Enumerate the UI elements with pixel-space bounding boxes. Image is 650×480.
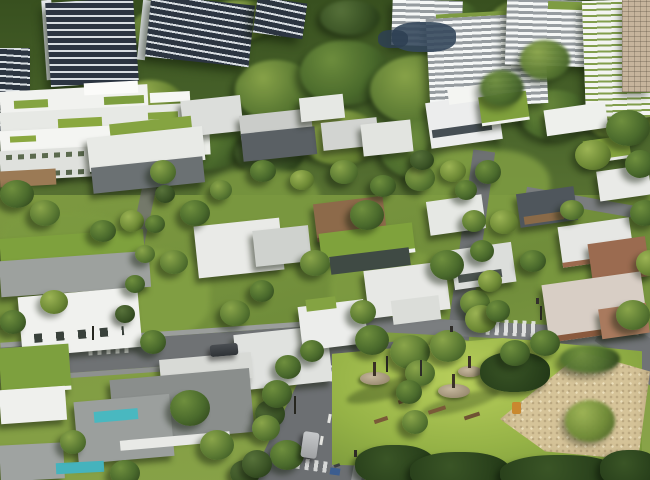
street-lamp: [540, 306, 542, 320]
street-lamp: [92, 326, 94, 340]
pedestrian: [450, 326, 453, 332]
scene-details: [0, 0, 650, 480]
bicycle: [334, 463, 341, 468]
pond-pavilion: [378, 30, 408, 48]
street-lamp: [294, 396, 296, 414]
aerial-render: [0, 0, 650, 480]
street-lamp: [386, 356, 388, 372]
street-lamp: [420, 360, 422, 376]
car-silver: [300, 431, 319, 459]
pedestrian: [354, 450, 357, 457]
pedestrian: [536, 298, 539, 304]
car-dark: [210, 343, 239, 357]
